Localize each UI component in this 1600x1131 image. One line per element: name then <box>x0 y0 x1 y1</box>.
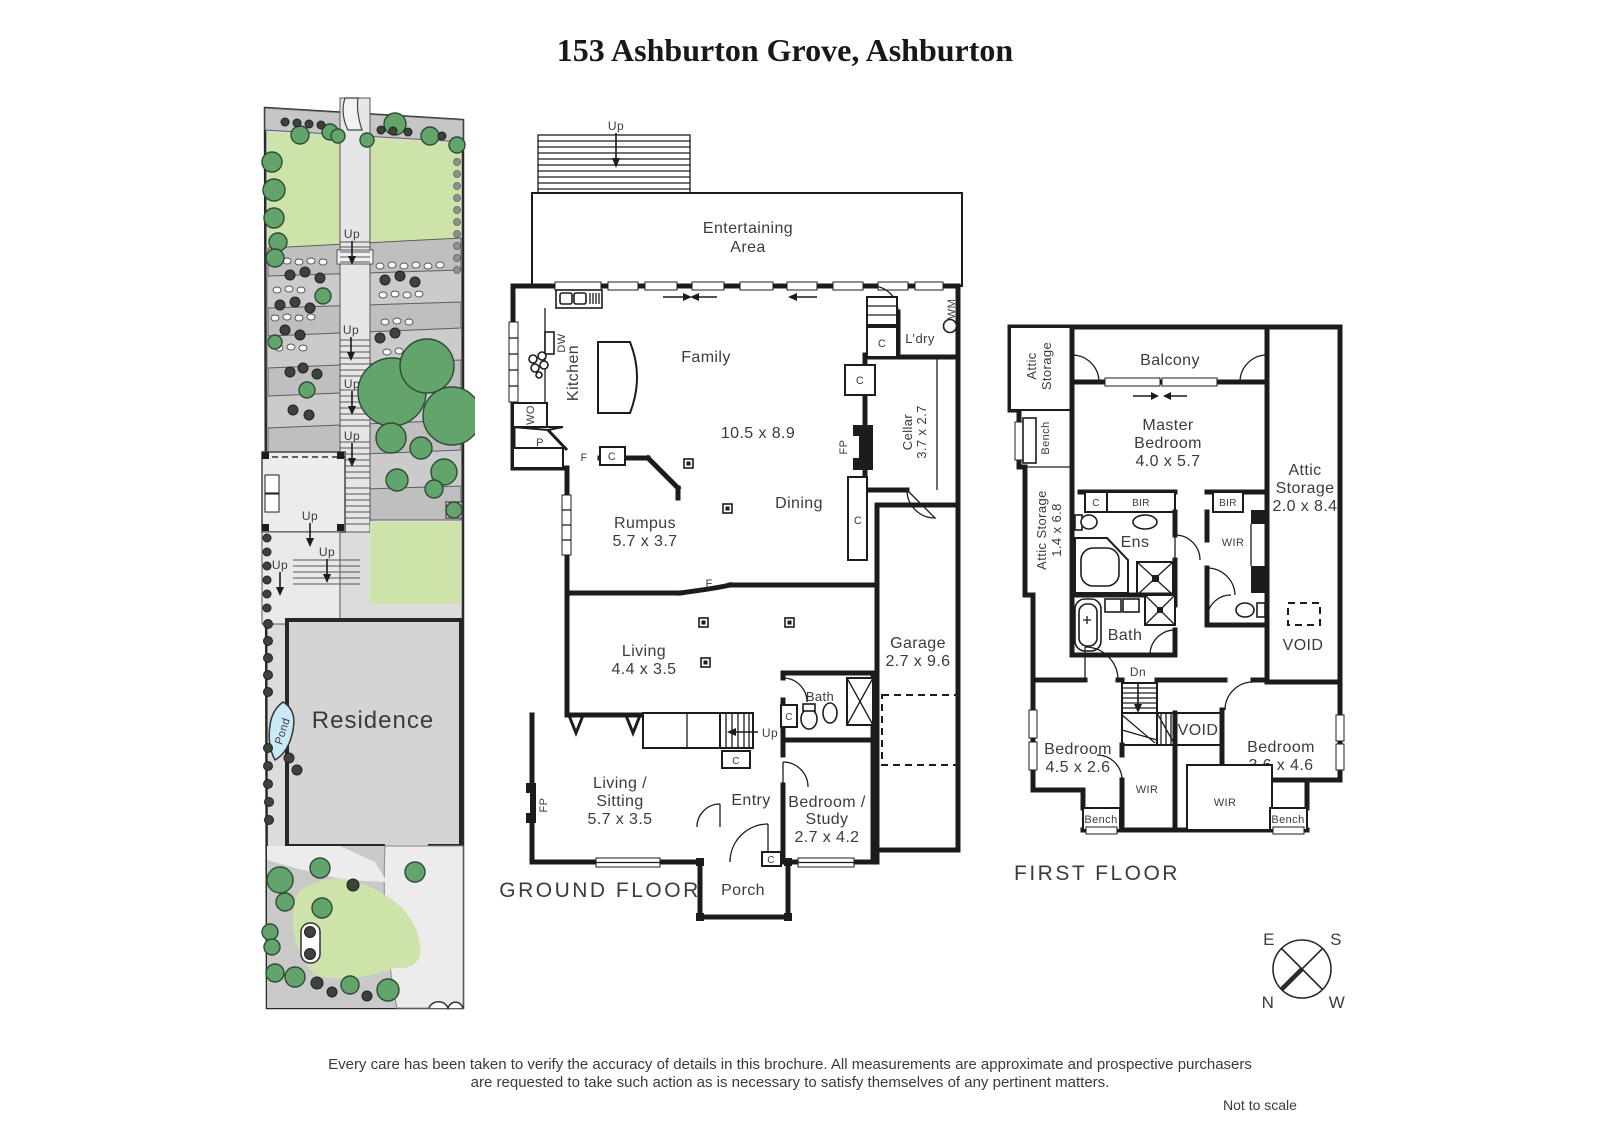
floor-title: FIRST FLOOR <box>1014 862 1180 885</box>
door-arc <box>1072 355 1099 382</box>
door-arc <box>1085 647 1118 680</box>
toilet <box>1236 603 1254 617</box>
compass-e: E <box>1263 930 1275 949</box>
lawn-mid-right <box>370 522 461 604</box>
residence-block <box>287 620 461 862</box>
door-arc <box>783 678 807 702</box>
room-label: Storage <box>1276 480 1335 497</box>
dim-label: 1.4 x 6.8 <box>1049 503 1064 556</box>
window <box>1336 715 1344 741</box>
room-label: Porch <box>721 882 765 899</box>
c-label: C <box>878 338 886 350</box>
room-label: Entertaining <box>703 220 793 237</box>
wir-label: WIR <box>1222 537 1245 549</box>
compass-n: N <box>1262 993 1275 1012</box>
up-label: Up <box>343 323 359 337</box>
residence-label: Residence <box>312 707 434 734</box>
door-arc <box>1207 595 1231 619</box>
dim-label: 3.7 x 2.7 <box>914 405 929 458</box>
dim-label: 10.5 x 8.9 <box>721 425 795 442</box>
toilet <box>1081 515 1097 529</box>
up-label: Up <box>762 726 778 740</box>
slider-arrows <box>1133 392 1187 400</box>
wo-label: WO <box>525 405 537 425</box>
vanity <box>1123 599 1139 612</box>
fp-label: FP <box>838 440 850 455</box>
fp-label: FP <box>538 798 550 813</box>
c-label: C <box>785 712 793 723</box>
up-label: Up <box>608 119 624 133</box>
car-space <box>882 695 958 765</box>
duct <box>1251 566 1267 593</box>
void-label: VOID <box>1178 722 1219 739</box>
basin <box>1133 515 1157 529</box>
void-dashed <box>1288 603 1320 625</box>
up-label: Up <box>272 558 288 572</box>
site-plan: Pond Residence <box>245 90 475 1015</box>
dim-label: 2.0 x 8.4 <box>1273 498 1338 515</box>
room-label: Cellar <box>900 414 915 451</box>
door-arc <box>1150 630 1175 655</box>
room-label: Attic <box>1288 462 1321 479</box>
pantry-wall <box>513 427 563 430</box>
disclaimer-line2: are requested to take such action as is … <box>170 1074 1410 1092</box>
island-bench <box>598 342 637 413</box>
bench-label: Bench <box>1271 814 1304 826</box>
bir-label: BIR <box>1132 498 1150 509</box>
c-label: C <box>856 375 864 387</box>
pantry-cell <box>513 448 563 468</box>
c-label: C <box>767 855 775 866</box>
disclaimer-line1: Every care has been taken to verify the … <box>170 1056 1410 1074</box>
f-label: F <box>580 452 587 464</box>
f-label: F <box>705 578 712 590</box>
room-label: Storage <box>1039 342 1054 390</box>
c-label: C <box>608 451 616 463</box>
compass-w: W <box>1329 993 1345 1012</box>
toilet <box>801 709 817 729</box>
room-label: Bath <box>1108 627 1143 644</box>
lawn-top-right <box>370 138 461 242</box>
room-label: Bedroom <box>1247 739 1315 756</box>
window <box>1086 827 1117 834</box>
door-arc <box>1175 535 1200 560</box>
stairs-up <box>720 713 753 748</box>
not-to-scale: Not to scale <box>1185 1097 1335 1113</box>
slider-arrows <box>663 293 817 301</box>
wir-label: WIR <box>1214 797 1237 809</box>
room-label: Living / <box>593 775 647 792</box>
feature-pot <box>305 949 316 960</box>
door-arc <box>1225 682 1253 710</box>
room-label: Ens <box>1121 534 1150 551</box>
c-label: C <box>732 756 740 767</box>
pergola-bench <box>265 475 279 493</box>
dim-label: 5.7 x 3.7 <box>613 533 678 550</box>
window <box>1015 422 1023 460</box>
floorplan-brochure: 153 Ashburton Grove, Ashburton <box>0 0 1600 1131</box>
post-markers <box>684 459 794 667</box>
window <box>1029 742 1037 770</box>
feature-pot <box>305 927 316 938</box>
up-label: Up <box>302 509 318 523</box>
bench-label: Bench <box>1084 814 1117 826</box>
room-label: Garage <box>890 635 946 652</box>
door-arc <box>1240 355 1267 382</box>
room-label: Rumpus <box>614 515 676 532</box>
dishwasher <box>545 332 554 354</box>
dn-label: Dn <box>1130 665 1146 679</box>
wm-label: WM <box>946 299 958 319</box>
window <box>1273 827 1304 834</box>
bir-label: BIR <box>1219 498 1237 509</box>
dim-label: 4.4 x 3.5 <box>612 661 677 678</box>
c-label: C <box>1092 498 1100 509</box>
dim-label: 4.0 x 5.7 <box>1136 453 1201 470</box>
window <box>1105 378 1160 386</box>
footer-disclaimer: Every care has been taken to verify the … <box>170 1056 1410 1092</box>
void-label: VOID <box>1283 637 1324 654</box>
window <box>1336 744 1344 770</box>
pergola-bench <box>265 494 279 512</box>
room-label: Dining <box>775 495 823 512</box>
room-label: Attic <box>1024 352 1039 379</box>
page-title: 153 Ashburton Grove, Ashburton <box>0 32 1570 69</box>
dim-label: 2.7 x 9.6 <box>886 653 951 670</box>
hall-cupboards <box>643 713 720 748</box>
room-label: Bath <box>806 689 834 704</box>
room-label: Attic Storage <box>1034 490 1049 570</box>
room-label: Study <box>806 811 849 828</box>
door-arc <box>1207 568 1235 595</box>
dim-label: 5.7 x 3.5 <box>588 811 653 828</box>
door-arc <box>697 804 720 827</box>
bench-seat <box>1023 418 1036 463</box>
deck-stairs <box>538 135 690 193</box>
bench-label: Bench <box>1040 421 1052 454</box>
up-label: Up <box>319 545 335 559</box>
wir-label: WIR <box>1136 784 1159 796</box>
room-label: Bedroom / <box>788 794 866 811</box>
basin <box>823 703 837 723</box>
washing-machine <box>944 320 957 333</box>
window <box>1162 378 1217 386</box>
room-label: Living <box>622 643 666 660</box>
vanity <box>1105 599 1121 612</box>
room-label: Family <box>681 349 731 366</box>
up-label: Up <box>344 429 360 443</box>
room-label: Area <box>730 239 765 256</box>
closet <box>867 297 897 325</box>
up-label: Up <box>344 377 360 391</box>
door-arc <box>783 762 808 787</box>
window <box>1029 710 1037 738</box>
c-label: C <box>854 515 862 527</box>
north-pointer <box>1282 969 1303 990</box>
room-label: Sitting <box>596 793 643 810</box>
room-label: Master <box>1142 417 1194 434</box>
ground-floor-plan: Up Entertaining Area DW <box>500 100 970 930</box>
up-label: Up <box>344 227 360 241</box>
window <box>509 322 518 402</box>
dim-label: 4.5 x 2.6 <box>1046 759 1111 776</box>
dim-label: 2.7 x 4.2 <box>795 829 860 846</box>
compass: E S N W <box>1240 905 1360 1015</box>
room-label: Bedroom <box>1134 435 1202 452</box>
duct <box>1251 510 1267 524</box>
room-label: L’dry <box>905 331 935 346</box>
room-label: Entry <box>731 792 770 809</box>
floor-title: GROUND FLOOR <box>500 879 701 902</box>
compass-s: S <box>1330 930 1342 949</box>
room-label: Balcony <box>1140 352 1200 369</box>
room-label: Kitchen <box>565 345 582 401</box>
first-floor-plan: Balcony Attic Storage Attic Storage 2.0 … <box>985 310 1355 890</box>
deck-stair-treads <box>538 141 690 189</box>
